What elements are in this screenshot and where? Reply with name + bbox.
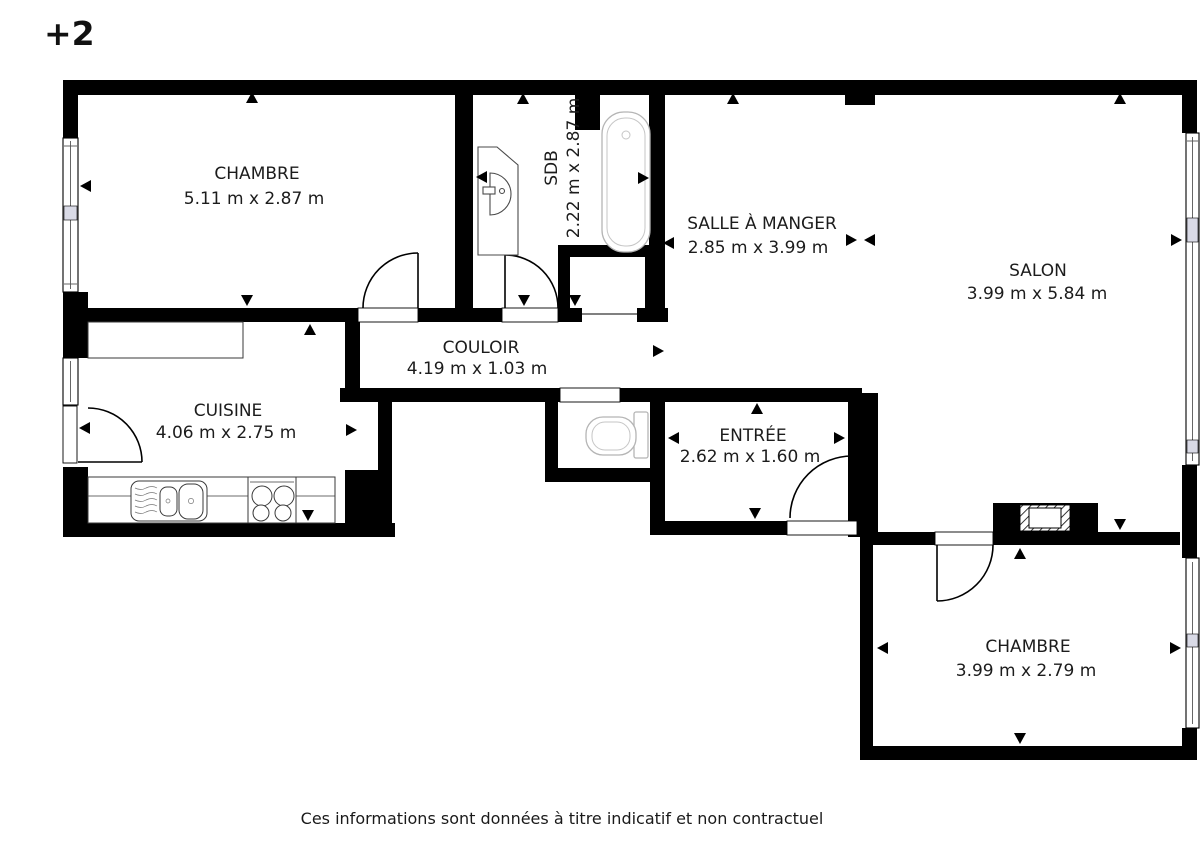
room-dimensions: 2.62 m x 1.60 m: [680, 447, 821, 467]
kitchen-counter-bottom: [88, 477, 335, 523]
window-chambre1: [63, 138, 78, 292]
door-arc-sdb: [505, 255, 558, 308]
room-label-entree: ENTRÉE 2.62 m x 1.60 m: [680, 424, 821, 467]
room-label-chambre-2: CHAMBRE 3.99 m x 2.79 m: [956, 637, 1097, 681]
arrow-marker: [1170, 642, 1181, 654]
room-dimensions: 2.22 m x 2.87 m: [564, 98, 584, 239]
room-name: CUISINE: [194, 401, 263, 421]
room-name: CHAMBRE: [985, 637, 1070, 657]
arrow-marker: [834, 432, 845, 444]
arrow-marker: [1014, 733, 1026, 744]
room-dimensions: 3.99 m x 5.84 m: [967, 284, 1108, 304]
duct-hatch: [1020, 505, 1070, 531]
room-label-sdb: SDB 2.22 m x 2.87 m: [542, 98, 584, 239]
arrow-marker: [79, 422, 90, 434]
arrow-marker: [1171, 234, 1182, 246]
floor-indicator: +2: [44, 14, 95, 53]
door-arc-chambre2: [937, 545, 993, 601]
arrow-marker: [653, 345, 664, 357]
arrow-marker: [80, 180, 91, 192]
room-name: COULOIR: [443, 338, 520, 358]
toilet: [586, 412, 648, 458]
arrow-marker: [241, 295, 253, 306]
arrow-marker: [346, 424, 357, 436]
room-label-salon: SALON 3.99 m x 5.84 m: [967, 261, 1108, 304]
bathtub: [602, 112, 650, 252]
room-name: CHAMBRE: [214, 164, 299, 184]
floorplan-page: +2 CHAMBRE 5.11 m x 2.87 m SDB 2.22 m x …: [0, 0, 1200, 842]
room-name: SALLE À MANGER: [687, 212, 837, 234]
arrow-marker: [668, 432, 679, 444]
room-dimensions: 2.85 m x 3.99 m: [688, 238, 829, 258]
room-dimensions: 5.11 m x 2.87 m: [184, 189, 325, 209]
arrow-marker: [751, 403, 763, 414]
arrow-marker: [304, 324, 316, 335]
room-name: SDB: [542, 150, 562, 186]
cooktop: [248, 477, 296, 523]
room-label-cuisine: CUISINE 4.06 m x 2.75 m: [156, 401, 297, 443]
kitchen-sink: [131, 481, 207, 521]
arrow-marker: [569, 295, 581, 306]
arrow-marker: [1114, 519, 1126, 530]
arrow-marker: [864, 234, 875, 246]
arrow-marker: [877, 642, 888, 654]
room-dimensions: 3.99 m x 2.79 m: [956, 661, 1097, 681]
arrow-marker: [846, 234, 857, 246]
arrow-marker: [518, 295, 530, 306]
room-dimensions: 4.06 m x 2.75 m: [156, 423, 297, 443]
room-dimensions: 4.19 m x 1.03 m: [407, 359, 548, 379]
kitchen-counter-top: [88, 322, 243, 358]
bathroom-sink: [478, 147, 518, 255]
window-cuisine: [63, 358, 78, 405]
door-arc-chambre1: [363, 253, 418, 308]
window-chambre2: [1186, 558, 1199, 728]
arrow-marker: [1014, 548, 1026, 559]
floorplan-drawing: +2 CHAMBRE 5.11 m x 2.87 m SDB 2.22 m x …: [0, 0, 1200, 842]
door-arc-cuisine: [78, 408, 142, 462]
room-label-couloir: COULOIR 4.19 m x 1.03 m: [407, 338, 548, 379]
room-label-salle-a-manger: SALLE À MANGER 2.85 m x 3.99 m: [687, 212, 837, 258]
room-name: SALON: [1009, 261, 1067, 281]
room-name: ENTRÉE: [719, 424, 786, 446]
disclaimer-text: Ces informations sont données à titre in…: [301, 809, 824, 828]
arrow-marker: [749, 508, 761, 519]
room-label-chambre-1: CHAMBRE 5.11 m x 2.87 m: [184, 164, 325, 209]
window-salon: [1186, 133, 1199, 465]
